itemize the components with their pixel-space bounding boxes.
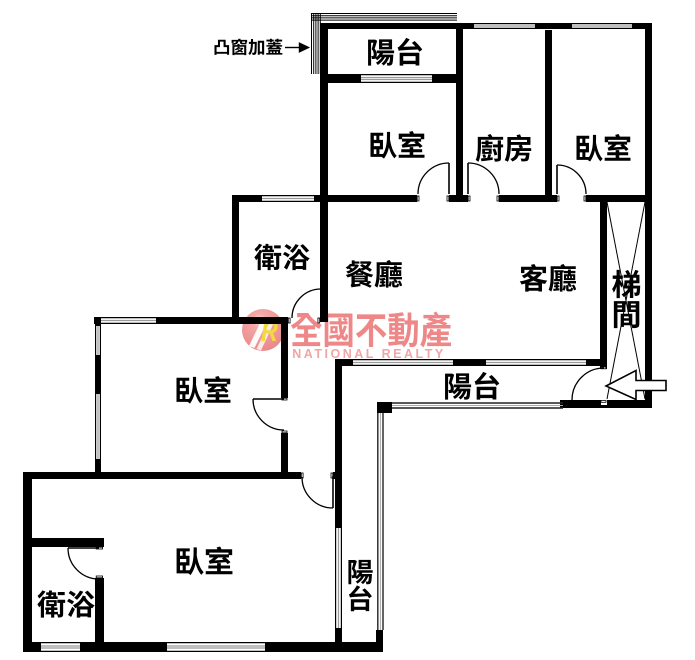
svg-text:NATIONAL REALTY: NATIONAL REALTY	[292, 347, 445, 361]
